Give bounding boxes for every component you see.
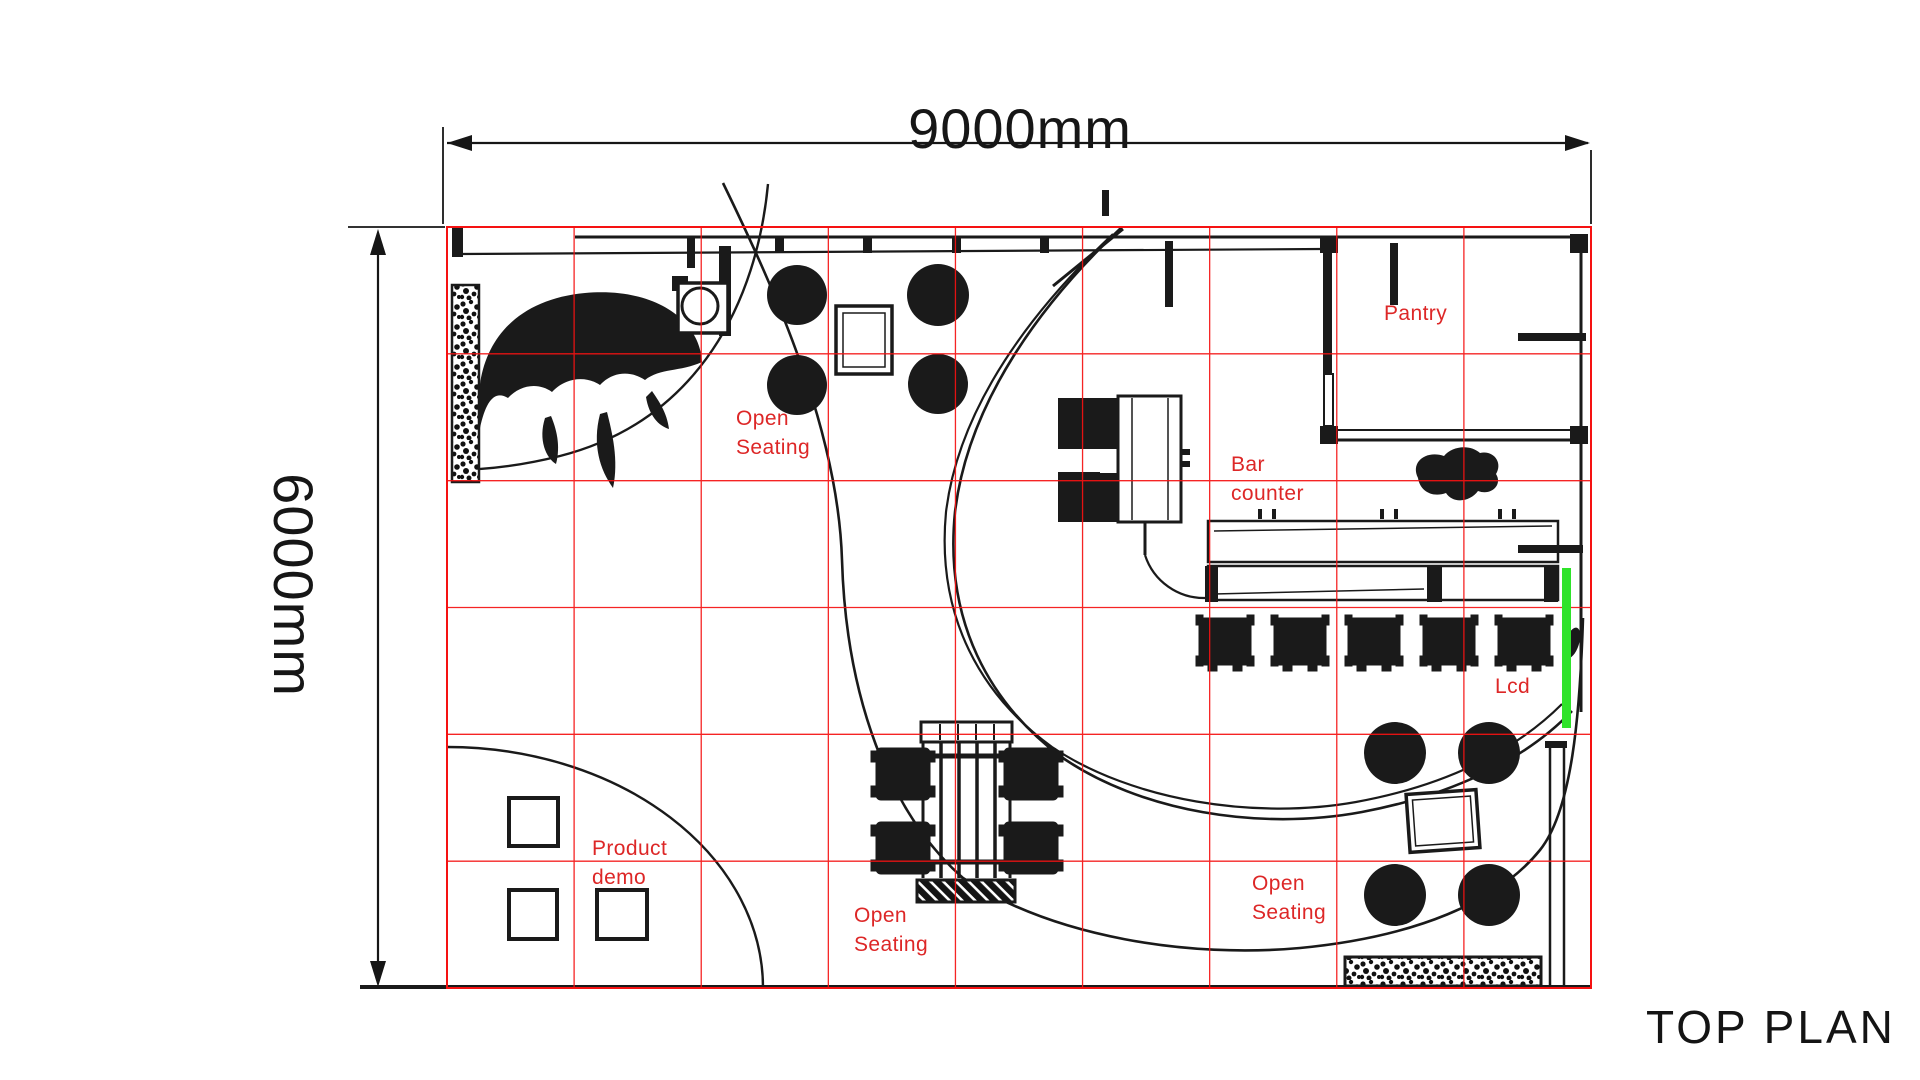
drawing-title: TOP PLAN (1646, 1000, 1896, 1054)
label-bar-counter: Bar counter (1231, 450, 1304, 508)
label-open-seating-right: Open Seating (1252, 869, 1326, 927)
bar-door (1145, 523, 1206, 598)
pantry-room (1320, 237, 1588, 444)
open-seating-top-group (767, 264, 969, 415)
wall-top-inner (460, 249, 1322, 254)
bar-counter-group (1205, 509, 1558, 602)
label-product-demo: Product demo (592, 834, 667, 892)
floor-plan-page: 9000mm 6000mm Open Seating Pantry Bar co… (0, 0, 1920, 1080)
dimension-width-label: 9000mm (860, 96, 1180, 162)
plant-blob (1416, 447, 1499, 500)
bar-stools (1196, 615, 1553, 671)
plant-fan (478, 292, 702, 488)
wall-left-stipple (452, 285, 479, 482)
bar-unit (1058, 396, 1190, 522)
label-lcd: Lcd (1495, 672, 1530, 701)
open-seating-right-group (1364, 722, 1520, 926)
lcd-screen-highlight (1562, 568, 1571, 728)
label-pantry: Pantry (1384, 299, 1447, 328)
dimension-height-label: 6000mm (260, 425, 326, 745)
open-seating-bottom-group (871, 722, 1063, 902)
label-open-seating-top: Open Seating (736, 404, 810, 462)
label-open-seating-bottom: Open Seating (854, 901, 928, 959)
platform-stipple (1345, 957, 1541, 986)
